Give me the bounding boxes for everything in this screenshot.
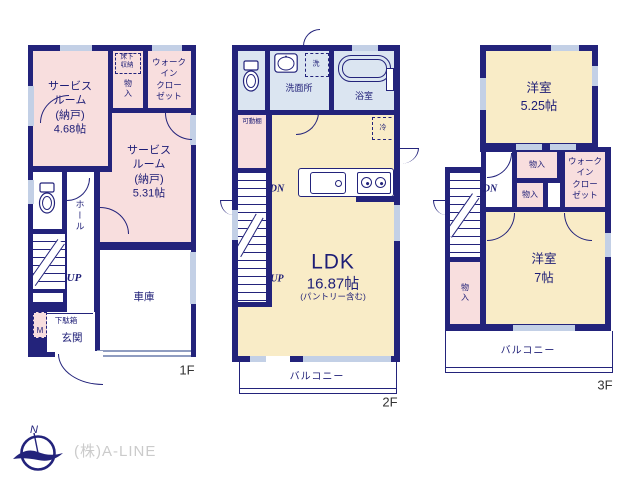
ldk-note-label: (パントリー含む) — [300, 291, 366, 302]
room-area-label: 7帖 — [534, 270, 553, 286]
shoe-cabinet-label: 下駄箱 — [55, 316, 78, 326]
shoe-cabinet-line — [47, 313, 93, 314]
floor2-label: 2F — [382, 395, 397, 412]
stair-break-line — [450, 193, 479, 237]
compass-north-label: N — [30, 424, 38, 436]
balcony-rail — [240, 388, 396, 389]
balcony-label: バルコニー — [501, 345, 556, 358]
entrance-door-arc — [58, 354, 103, 385]
sink-icon — [274, 53, 298, 73]
compass-icon: N — [10, 423, 66, 475]
wic-label: ウォーク イン クロー ゼット — [152, 57, 186, 103]
room-ldk — [272, 115, 394, 356]
room-label: サービス ルーム (納戸) 5.31帖 — [127, 143, 171, 200]
floorplan-canvas: サービス ルーム (納戸) 4.68帖 床下 収納 物入 ウォーク イン クロー… — [0, 0, 640, 480]
toilet-icon — [242, 60, 260, 94]
casement-window — [220, 200, 233, 215]
bath-control-panel — [386, 68, 394, 91]
door-arc — [303, 29, 320, 46]
window — [592, 66, 598, 86]
stairs-2f — [238, 173, 266, 302]
washer-label: 洗 — [313, 59, 320, 68]
corridor-3f-b — [548, 183, 560, 207]
window — [152, 45, 182, 51]
garage-shutter-line — [97, 355, 191, 357]
kitchen-half-wall — [356, 196, 394, 202]
kitchen-counter — [298, 168, 394, 197]
stairs-3f — [450, 173, 480, 257]
toilet-icon — [38, 182, 56, 216]
garage-label: 車庫 — [134, 291, 155, 305]
window — [60, 45, 92, 51]
up-label: UP — [67, 271, 82, 285]
bathroom-label: 浴室 — [355, 91, 373, 103]
sliding-door — [513, 325, 575, 331]
meter-label: M — [37, 326, 44, 336]
window — [28, 180, 34, 204]
up-label: UP — [270, 273, 283, 286]
washroom-label: 洗面所 — [285, 83, 312, 95]
sliding-door — [516, 144, 542, 150]
hall-label: ホール — [74, 200, 87, 233]
casement-window — [433, 200, 446, 215]
under-stair-storage — [33, 293, 63, 302]
ldk-name-label: LDK — [311, 248, 355, 275]
kitchen-sink-icon — [310, 172, 346, 194]
movable-shelf-label: 可動棚 — [242, 118, 262, 126]
floor1-label: 1F — [179, 363, 194, 380]
room-area-label: 5.25帖 — [521, 98, 558, 114]
balcony-label: バルコニー — [290, 371, 345, 384]
stair-break-line — [33, 239, 65, 286]
window — [352, 45, 378, 51]
stove-icon — [357, 172, 391, 194]
storage-label: 物入 — [460, 283, 471, 303]
company-name: (株)A-LINE — [74, 440, 156, 461]
window — [28, 86, 34, 126]
room-name-label: 洋室 — [526, 80, 551, 96]
window — [480, 78, 486, 110]
room-label: サービス ルーム (納戸) 4.68帖 — [48, 79, 92, 136]
floor3-label: 3F — [597, 378, 612, 395]
window — [394, 205, 400, 241]
dn-label: DN — [483, 183, 497, 196]
room-ldk-ext — [238, 307, 272, 356]
stairs-1f — [33, 234, 65, 289]
sliding-door — [550, 144, 576, 150]
bathtub-icon — [338, 55, 391, 82]
window — [551, 45, 579, 51]
garage-shutter-line — [97, 350, 191, 352]
storage-label: 物入 — [522, 190, 538, 200]
stair-break-line — [238, 214, 263, 257]
storage-label: 物入 — [123, 79, 134, 99]
balcony-rail — [446, 367, 612, 368]
fridge-label: 冷 — [380, 123, 387, 132]
entrance-label: 玄関 — [62, 332, 83, 346]
window — [605, 233, 611, 257]
underfloor-storage-label: 床下 収納 — [121, 54, 134, 71]
storage-label: 物入 — [529, 160, 545, 170]
casement-window — [400, 148, 419, 164]
wic-label: ウォーク イン クロー ゼット — [568, 156, 602, 202]
dn-label: DN — [270, 183, 284, 196]
window — [190, 252, 196, 304]
room-name-label: 洋室 — [531, 251, 556, 267]
